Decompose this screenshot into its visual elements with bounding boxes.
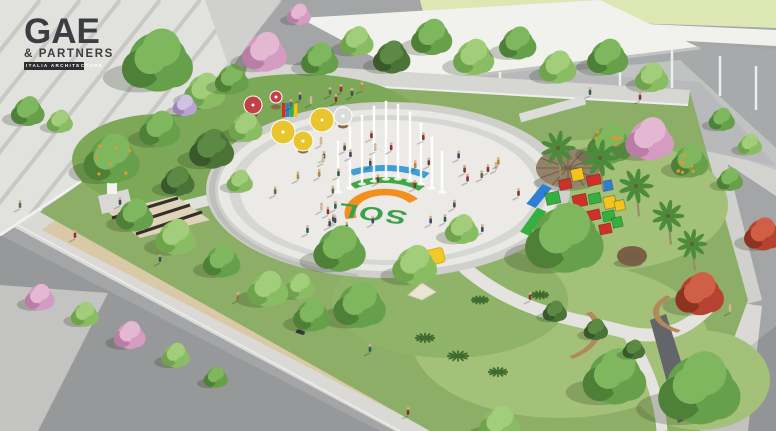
tree [250, 41, 270, 61]
tree [418, 27, 436, 45]
play-block [611, 216, 623, 228]
person [327, 209, 330, 215]
palm-crown [634, 184, 638, 188]
umbrella-tip [275, 96, 278, 99]
person-head [329, 87, 332, 90]
person [422, 135, 425, 141]
person-head [299, 92, 302, 95]
person [274, 189, 277, 195]
person-head [369, 344, 372, 347]
person-head [517, 188, 520, 191]
person [407, 410, 410, 416]
person-head [480, 170, 483, 173]
umbrella-tip [282, 131, 285, 134]
person-head [466, 174, 469, 177]
kiosk-stripe [282, 103, 285, 117]
person-head [274, 186, 277, 189]
tree [231, 175, 243, 187]
person [320, 139, 323, 145]
person [457, 153, 460, 159]
person-head [370, 130, 373, 133]
fruit [677, 169, 680, 172]
fruit [128, 149, 131, 152]
person [414, 163, 417, 169]
person [497, 159, 500, 165]
person-head [422, 132, 425, 135]
kiosk-stripe [294, 103, 297, 117]
tree [400, 254, 420, 274]
jet-tip [441, 151, 444, 154]
person-head [481, 224, 484, 227]
tree [594, 360, 623, 389]
tree [146, 119, 164, 137]
person-head [427, 157, 430, 160]
person [335, 97, 338, 103]
person [487, 167, 490, 173]
person [428, 160, 431, 166]
tree [742, 138, 753, 149]
person-head [487, 164, 490, 167]
umbrella-tip [321, 119, 324, 122]
person [119, 200, 122, 206]
tree [627, 344, 637, 354]
tree [684, 281, 706, 303]
tree [119, 327, 133, 341]
jet-tip [420, 123, 423, 126]
person-head [19, 200, 22, 203]
tree [51, 115, 63, 127]
person-head [335, 94, 338, 97]
person [463, 167, 466, 173]
fruit [97, 172, 100, 175]
person [290, 102, 293, 108]
person-head [290, 99, 293, 102]
tree [634, 126, 656, 148]
logo-main-text: GAE [24, 18, 114, 47]
person [343, 145, 346, 151]
person-head [334, 215, 337, 218]
person-head [332, 186, 335, 189]
person-head [343, 143, 346, 146]
play-block [588, 192, 602, 204]
person [639, 95, 642, 101]
jet-tip [397, 104, 400, 107]
person-head [318, 169, 321, 172]
jet-tip [337, 141, 340, 144]
person-head [414, 160, 417, 163]
person-head [327, 206, 330, 209]
person-head [589, 87, 592, 90]
fruit [115, 147, 118, 150]
jet-tip [385, 101, 388, 104]
person [529, 295, 532, 301]
person-head [463, 165, 466, 168]
scene-canvas: SOL [0, 0, 776, 431]
person-head [371, 216, 374, 219]
tree [291, 8, 302, 19]
fruit [681, 162, 684, 165]
person [310, 99, 313, 105]
jet-tip [431, 137, 434, 140]
tree [346, 33, 361, 48]
person-head [413, 180, 416, 183]
play-block [545, 191, 561, 206]
fruit [95, 155, 98, 158]
person-head [237, 292, 240, 295]
palm-crown [598, 156, 602, 160]
tree [673, 367, 710, 404]
palm-crown [556, 146, 560, 150]
tree [713, 113, 725, 125]
person [589, 90, 592, 96]
jet-tip [349, 127, 352, 130]
cafe-table [271, 105, 281, 110]
tree [123, 206, 140, 223]
person-head [369, 158, 372, 161]
person-head [407, 407, 410, 410]
play-block [558, 178, 572, 190]
person [369, 160, 372, 166]
person-head [495, 162, 498, 165]
tree [221, 71, 236, 86]
person [74, 233, 77, 239]
tree [506, 34, 523, 51]
jet-tip [409, 112, 412, 115]
person [320, 205, 323, 211]
gae-partners-logo: GAE & PARTNERS ITALIA ARCHITECTURE [24, 18, 114, 70]
umbrella-tip [252, 104, 255, 107]
fruit [683, 154, 686, 157]
tree [210, 252, 227, 269]
person-head [306, 225, 309, 228]
person-head [374, 143, 377, 146]
person-head [297, 172, 300, 175]
person-head [497, 157, 500, 160]
person-head [119, 197, 122, 200]
person-head [320, 137, 323, 140]
logo-tagline-text: ITALIA ARCHITECTURE [24, 62, 84, 70]
person [334, 218, 337, 224]
jet-tip [361, 115, 364, 118]
tree [167, 348, 180, 361]
person-head [337, 168, 340, 171]
tree [751, 225, 768, 242]
palm-crown [690, 242, 694, 246]
person-head [529, 292, 532, 295]
tree [380, 48, 397, 65]
person-head [74, 230, 77, 233]
person-head [320, 203, 323, 206]
person [329, 90, 332, 96]
person-head [345, 222, 348, 225]
tree [290, 279, 303, 292]
umbrella-tip [342, 115, 345, 118]
person [444, 217, 447, 223]
tree [546, 58, 563, 75]
person-head [323, 151, 326, 154]
person-head [453, 200, 456, 203]
play-block [598, 223, 612, 235]
person [429, 218, 432, 224]
fruit [109, 161, 112, 164]
person [377, 177, 380, 183]
umbrella-tip [302, 140, 305, 143]
person [729, 307, 732, 313]
tree [460, 47, 478, 65]
person [369, 347, 372, 353]
play-block [614, 199, 626, 211]
person [322, 157, 325, 163]
palm-crown [666, 214, 670, 218]
person-head [429, 216, 432, 219]
tree [162, 227, 180, 245]
person-head [390, 142, 393, 145]
tree [17, 103, 32, 118]
person [517, 191, 520, 197]
tree [721, 173, 733, 185]
person [481, 227, 484, 233]
tree [254, 279, 272, 297]
person [318, 171, 321, 177]
person [337, 171, 340, 177]
person [351, 91, 354, 97]
person [480, 173, 483, 179]
tree [451, 221, 466, 236]
tree [177, 99, 188, 110]
fruit [98, 144, 101, 147]
architectural-rendering: SOL GAE & PARTNERS ITALIA ARCHITECTURE [0, 0, 776, 431]
tree [323, 235, 347, 259]
fruit [614, 136, 617, 139]
play-block [570, 167, 584, 181]
fruit [690, 164, 693, 167]
fruit [596, 130, 599, 133]
fruit [681, 171, 684, 174]
fruit [594, 137, 597, 140]
jet-tip [373, 106, 376, 109]
tree [208, 371, 219, 382]
person [340, 87, 343, 93]
person [349, 152, 352, 158]
tree [167, 173, 182, 188]
tree [343, 291, 367, 315]
person-head [340, 84, 343, 87]
person [306, 228, 309, 234]
tree [539, 218, 574, 253]
tree [134, 42, 166, 74]
person-head [349, 149, 352, 152]
fruit [619, 136, 622, 139]
tree [594, 47, 612, 65]
tree [308, 50, 325, 67]
person [374, 146, 377, 152]
tree [300, 306, 317, 323]
person [361, 85, 364, 91]
person [466, 176, 469, 182]
person-head [457, 151, 460, 154]
person-head [334, 201, 337, 204]
person [371, 218, 374, 224]
person [334, 203, 337, 209]
tree [197, 138, 217, 158]
person-head [376, 174, 379, 177]
fruit [692, 170, 695, 173]
tree [235, 119, 250, 134]
person-head [444, 214, 447, 217]
person [297, 174, 300, 180]
person-head [639, 92, 642, 95]
person-head [322, 155, 325, 158]
person [19, 203, 22, 209]
fruit [124, 172, 127, 175]
person [328, 221, 331, 227]
person-head [310, 96, 313, 99]
tree [547, 305, 558, 316]
person [390, 145, 393, 151]
person [413, 183, 416, 189]
person-head [729, 304, 732, 307]
person [332, 188, 335, 194]
person-head [361, 82, 364, 85]
logo-sub-text: & PARTNERS [24, 49, 114, 61]
person-head [351, 88, 354, 91]
tree [641, 69, 656, 84]
person-head [328, 218, 331, 221]
person [299, 95, 302, 101]
person [453, 202, 456, 208]
tree [76, 307, 89, 320]
person [370, 133, 373, 139]
tree [588, 323, 599, 334]
person [159, 257, 162, 263]
tree [30, 290, 43, 303]
